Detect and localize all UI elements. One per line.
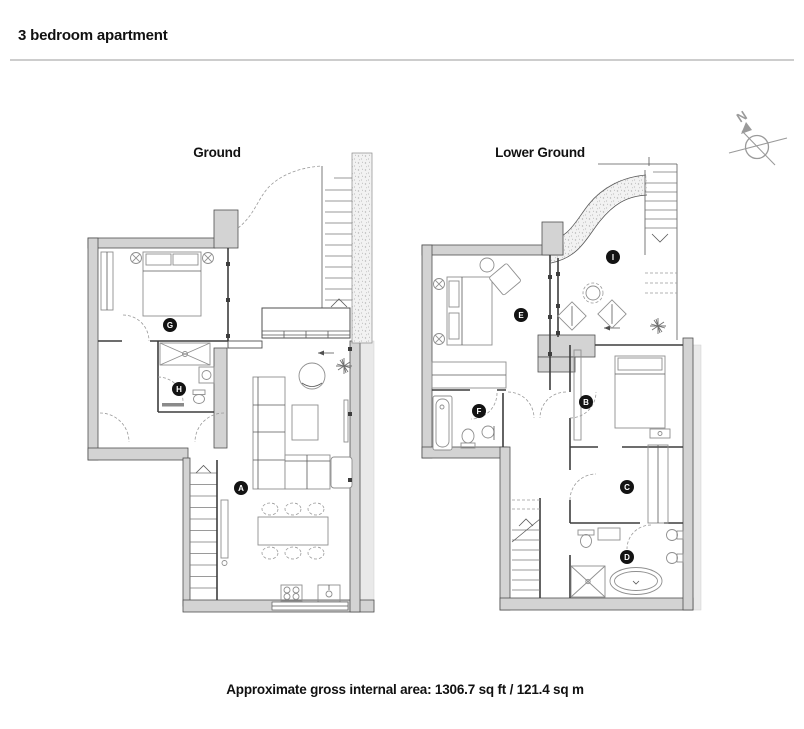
textured-external-wall bbox=[352, 153, 372, 343]
round-chair bbox=[299, 363, 325, 389]
svg-text:I: I bbox=[612, 253, 614, 262]
bedside-lamp bbox=[431, 331, 447, 347]
direction-arrow bbox=[318, 351, 324, 356]
lower-ground-floor-plan bbox=[422, 157, 701, 610]
svg-text:C: C bbox=[624, 483, 630, 492]
bed bbox=[447, 277, 492, 345]
dining-table bbox=[258, 517, 328, 545]
room-label-c: C bbox=[620, 480, 634, 494]
area-summary: Approximate gross internal area: 1306.7 … bbox=[226, 682, 584, 697]
tv-unit bbox=[344, 400, 348, 442]
bedroom-e-furniture bbox=[431, 258, 521, 388]
toilet bbox=[193, 390, 205, 395]
terrace bbox=[556, 258, 683, 345]
window-bay bbox=[262, 308, 350, 338]
bedside-lamp bbox=[128, 250, 144, 266]
room-label-e: E bbox=[514, 308, 528, 322]
svg-text:F: F bbox=[477, 407, 482, 416]
room-label-b: B bbox=[579, 395, 593, 409]
svg-text:G: G bbox=[167, 321, 173, 330]
room-label-i: I bbox=[606, 250, 620, 264]
bedside-lamp bbox=[431, 276, 447, 292]
tv-unit bbox=[650, 429, 670, 438]
north-compass: N bbox=[729, 108, 787, 165]
hob bbox=[281, 585, 302, 601]
svg-text:B: B bbox=[583, 398, 589, 407]
svg-text:A: A bbox=[238, 484, 244, 493]
toilet bbox=[462, 429, 474, 443]
floor-plan-canvas: 3 bedroom apartment Ground Lower Ground bbox=[0, 0, 804, 729]
basin bbox=[667, 553, 678, 564]
side-table bbox=[480, 258, 494, 272]
bed bbox=[615, 356, 665, 428]
bedroom-furniture bbox=[101, 250, 216, 316]
stairs-down bbox=[190, 460, 228, 600]
svg-text:E: E bbox=[518, 311, 524, 320]
room-label-f: F bbox=[472, 404, 486, 418]
ground-plan-title: Ground bbox=[193, 145, 241, 160]
bedside-lamp bbox=[200, 250, 216, 266]
coffee-table bbox=[292, 405, 318, 440]
svg-text:D: D bbox=[624, 553, 630, 562]
door-swings bbox=[100, 315, 224, 442]
room-label-h: H bbox=[172, 382, 186, 396]
basin bbox=[482, 426, 494, 438]
stairs-mid bbox=[512, 500, 540, 590]
bedroom-c-furniture bbox=[648, 445, 668, 523]
ground-floor-plan bbox=[88, 153, 374, 612]
floor-plan-page: 3 bedroom apartment Ground Lower Ground bbox=[0, 0, 804, 729]
basin bbox=[667, 530, 678, 541]
shower-room bbox=[158, 341, 214, 412]
plant-icon bbox=[650, 318, 666, 334]
curved-boundary-line bbox=[238, 166, 322, 228]
bed bbox=[143, 252, 201, 316]
bathroom-f-fixtures bbox=[433, 396, 494, 450]
svg-text:H: H bbox=[176, 385, 182, 394]
stairs-up bbox=[322, 166, 352, 310]
living-room-furniture bbox=[253, 358, 352, 602]
room-label-d: D bbox=[620, 550, 634, 564]
room-label-g: G bbox=[163, 318, 177, 332]
lower-ground-plan-title: Lower Ground bbox=[495, 145, 585, 160]
armchair bbox=[331, 457, 352, 488]
page-title: 3 bedroom apartment bbox=[18, 27, 168, 44]
basin bbox=[199, 367, 214, 383]
room-label-a: A bbox=[234, 481, 248, 495]
north-label: N bbox=[734, 108, 750, 126]
vanity bbox=[598, 528, 620, 540]
bedroom-b-furniture bbox=[574, 350, 670, 440]
